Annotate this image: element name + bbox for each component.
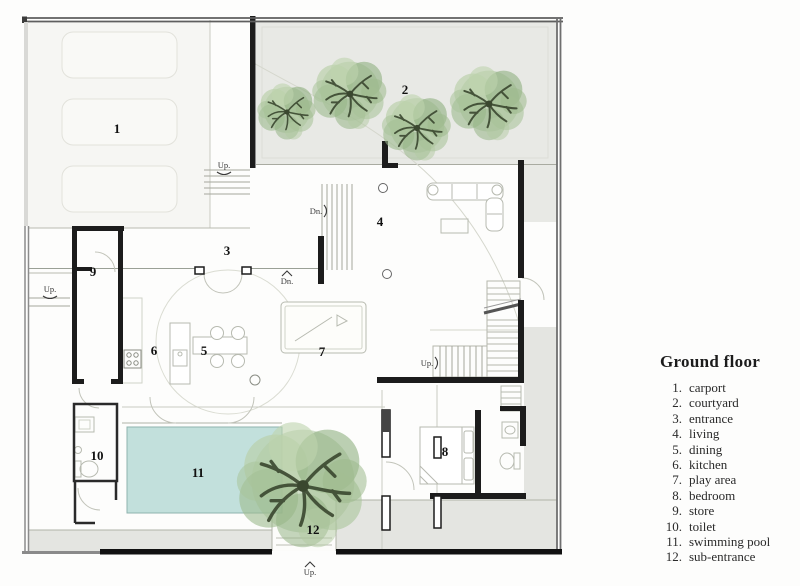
legend-item: 10.toilet bbox=[658, 521, 796, 534]
courtyard-area-ext bbox=[524, 165, 557, 222]
column bbox=[383, 270, 392, 279]
legend-item-number: 5. bbox=[658, 444, 682, 457]
legend-item-label: dining bbox=[689, 444, 722, 457]
legend-item: 12.sub-entrance bbox=[658, 551, 796, 564]
coffee-table bbox=[441, 219, 468, 233]
legend-item-label: store bbox=[689, 505, 714, 518]
legend-item-label: entrance bbox=[689, 413, 733, 426]
sofa bbox=[427, 183, 503, 233]
arrow-curve-icon bbox=[324, 205, 327, 217]
legend-title: Ground floor bbox=[660, 352, 796, 372]
room-label-bedroom: 8 bbox=[442, 444, 449, 459]
room-label-entrance: 3 bbox=[224, 243, 231, 258]
terrace-bottom-right bbox=[336, 500, 557, 551]
floor-plan-page: 1 2 3 4 5 6 7 8 9 10 11 12 Up. Dn. Dn. U… bbox=[0, 0, 800, 586]
stove bbox=[124, 350, 141, 368]
room-label-living: 4 bbox=[377, 214, 384, 229]
arrow-curve-icon bbox=[435, 357, 438, 369]
legend-item: 6.kitchen bbox=[658, 459, 796, 472]
legend-item-number: 4. bbox=[658, 428, 682, 441]
room-label-dining: 5 bbox=[201, 343, 208, 358]
legend-item-label: living bbox=[689, 428, 719, 441]
legend-item-number: 7. bbox=[658, 474, 682, 487]
room-label-kitchen: 6 bbox=[151, 343, 158, 358]
room-label-sub-entrance: 12 bbox=[307, 522, 320, 537]
legend: Ground floor 1.carport 2.courtyard 3.ent… bbox=[658, 352, 796, 564]
legend-item-label: carport bbox=[689, 382, 726, 395]
dn-label-stair: Dn. bbox=[310, 206, 323, 216]
room-label-toilet: 10 bbox=[91, 448, 104, 463]
legend-item-label: courtyard bbox=[689, 397, 739, 410]
legend-item: 11.swimming pool bbox=[658, 536, 796, 549]
legend-item-label: sub-entrance bbox=[689, 551, 755, 564]
legend-item-number: 8. bbox=[658, 490, 682, 503]
up-label-carport: Up. bbox=[218, 160, 231, 170]
legend-item-label: toilet bbox=[689, 521, 716, 534]
legend-item: 5.dining bbox=[658, 444, 796, 457]
toilet-fixtures bbox=[75, 417, 99, 477]
room-label-courtyard: 2 bbox=[402, 82, 409, 97]
column bbox=[379, 184, 388, 193]
legend-item-label: bedroom bbox=[689, 490, 735, 503]
room-label-play-area: 7 bbox=[319, 344, 326, 359]
legend-item-number: 3. bbox=[658, 413, 682, 426]
legend-item-number: 6. bbox=[658, 459, 682, 472]
bedroom-bath-fixtures bbox=[500, 422, 520, 469]
room-label-store: 9 bbox=[90, 264, 97, 279]
legend-item: 2.courtyard bbox=[658, 397, 796, 410]
legend-item: 9.store bbox=[658, 505, 796, 518]
up-label-side: Up. bbox=[44, 284, 57, 294]
legend-item-number: 1. bbox=[658, 382, 682, 395]
legend-item: 8.bedroom bbox=[658, 490, 796, 503]
legend-item: 3.entrance bbox=[658, 413, 796, 426]
wall-jamb-dark bbox=[382, 410, 390, 432]
dn-label-hall: Dn. bbox=[281, 276, 294, 286]
legend-item-number: 11. bbox=[658, 536, 682, 549]
legend-item-label: swimming pool bbox=[689, 536, 770, 549]
terrace-bottom-left bbox=[28, 530, 272, 551]
legend-list: 1.carport 2.courtyard 3.entrance 4.livin… bbox=[658, 382, 796, 564]
legend-item-number: 2. bbox=[658, 397, 682, 410]
up-label-stair: Up. bbox=[421, 358, 434, 368]
legend-item-label: play area bbox=[689, 474, 736, 487]
legend-item-number: 10. bbox=[658, 521, 682, 534]
up-label-sub-entrance: Up. bbox=[304, 567, 317, 577]
legend-item: 7.play area bbox=[658, 474, 796, 487]
room-label-pool: 11 bbox=[192, 465, 204, 480]
arrow-curve-icon bbox=[217, 172, 231, 175]
room-label-carport: 1 bbox=[114, 121, 121, 136]
legend-item: 1.carport bbox=[658, 382, 796, 395]
legend-item: 4.living bbox=[658, 428, 796, 441]
legend-item-number: 9. bbox=[658, 505, 682, 518]
legend-item-label: kitchen bbox=[689, 459, 727, 472]
legend-item-number: 12. bbox=[658, 551, 682, 564]
